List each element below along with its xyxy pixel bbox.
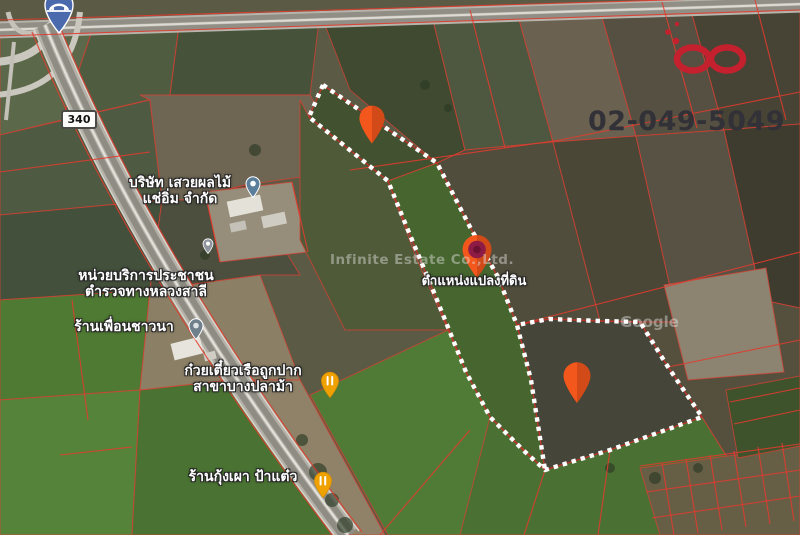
- place-label-line1: บริษัท เสวยผลไม้: [129, 175, 231, 191]
- infinite-estate-logo-icon: [660, 14, 760, 76]
- restaurant-pin-prawn[interactable]: [313, 471, 333, 498]
- satellite-map[interactable]: บริษัท เสวยผลไม้ แช่อิ่ม จำกัด หน่วยบริก…: [0, 0, 800, 535]
- place-label-line1: ก๋วยเตี๋ยวเรือถูกปาก: [184, 363, 301, 379]
- place-label-line1: ร้านเพื่อนชาวนา: [74, 319, 174, 335]
- place-label-line2: ตำรวจทางหลวงสาลี: [78, 285, 214, 301]
- place-label-company[interactable]: บริษัท เสวยผลไม้ แช่อิ่ม จำกัด: [129, 176, 231, 207]
- place-label-line2: แช่อิ่ม จำกัด: [129, 192, 231, 208]
- bridge-poi-icon[interactable]: [42, 0, 76, 34]
- place-label-line1: หน่วยบริการประชาชน: [78, 268, 214, 284]
- watermark-map-credit: Google: [620, 313, 679, 331]
- company-place-pin[interactable]: [245, 176, 261, 198]
- shop-place-pin[interactable]: [188, 318, 204, 340]
- property-marker-1[interactable]: [358, 104, 386, 144]
- small-place-pin[interactable]: [202, 238, 214, 254]
- place-label-line2: สาขาบางปลาม้า: [184, 380, 301, 396]
- parcel-marker-label: ตำแหน่งแปลงที่ดิน: [422, 274, 527, 290]
- place-label-line1: ร้านกุ้งเผา ป้าแต๋ว: [189, 469, 298, 485]
- restaurant-pin-noodle[interactable]: [320, 371, 340, 398]
- place-label-farm-shop[interactable]: ร้านเพื่อนชาวนา: [74, 320, 174, 336]
- route-badge-340: 340: [61, 110, 97, 129]
- watermark-company: Infinite Estate Co.,Ltd.: [330, 252, 514, 268]
- place-label-police[interactable]: หน่วยบริการประชาชน ตำรวจทางหลวงสาลี: [78, 269, 214, 300]
- place-label-prawn[interactable]: ร้านกุ้งเผา ป้าแต๋ว: [189, 470, 298, 486]
- place-label-noodle[interactable]: ก๋วยเตี๋ยวเรือถูกปาก สาขาบางปลาม้า: [184, 364, 301, 395]
- property-marker-3[interactable]: [562, 361, 592, 403]
- contact-phone: 02-049-5049: [588, 106, 785, 137]
